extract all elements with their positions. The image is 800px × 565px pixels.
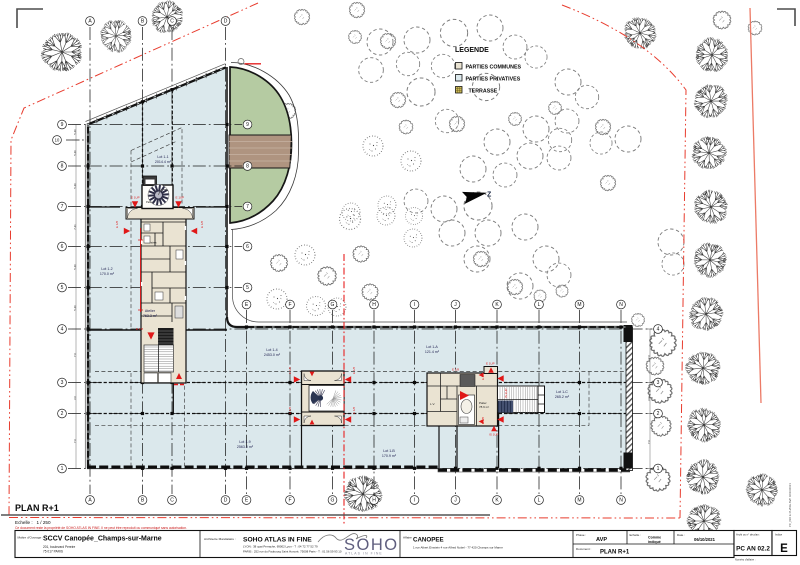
svg-text:1: 1 [61,466,64,472]
svg-text:L: L [538,302,541,308]
svg-text:E 1UP: E 1UP [486,362,495,366]
svg-text:PC AN 02.2: PC AN 02.2 [736,546,770,553]
svg-text:PLAN R+1: PLAN R+1 [15,503,59,513]
svg-text:Z: Z [487,192,492,199]
svg-text:E 1UP: E 1UP [176,196,185,200]
svg-text:Phase :: Phase : [576,533,586,537]
svg-text:E 1/8: E 1/8 [115,221,119,228]
svg-text:201, boulevard Pereire: 201, boulevard Pereire [43,545,75,549]
svg-text:Palier: Palier [146,200,153,204]
svg-text:I: I [414,302,415,308]
svg-text:2563.0 m²: 2563.0 m² [237,445,254,449]
svg-text:Atelier: Atelier [145,309,156,313]
svg-text:5: 5 [61,285,64,291]
svg-text:9: 9 [246,122,249,128]
svg-text:Lot 1-B: Lot 1-B [383,449,395,453]
svg-text:1: 1 [657,466,660,472]
svg-text:2453.0 m²: 2453.0 m² [264,353,281,357]
svg-text:PARIS : 252 rue du Faubourg Sa: PARIS : 252 rue du Faubourg Saint Honoré… [243,550,342,554]
svg-text:170.9 m²: 170.9 m² [382,454,397,458]
svg-text:LEGENDE: LEGENDE [455,47,489,54]
svg-text:4: 4 [657,327,660,333]
svg-text:F: F [288,498,291,504]
svg-text:170.0 m²: 170.0 m² [100,272,115,276]
svg-text:3: 3 [61,380,64,386]
svg-text:Echelle : 1 / 250: Echelle : 1 / 250 [15,520,51,525]
svg-text:7.0: 7.0 [647,355,651,359]
svg-text:IS 2UP: IS 2UP [504,388,508,398]
svg-text:C: C [170,19,174,25]
svg-text:1 rue Albert Einstein 4 rue A: 1 rue Albert Einstein 4 rue Alfred Nobel… [413,546,503,550]
svg-text:Lot 1-9: Lot 1-9 [239,440,250,444]
svg-text:6: 6 [246,244,249,250]
svg-text:G: G [331,302,335,308]
svg-text:7.0: 7.0 [73,353,77,357]
svg-text:7.0: 7.0 [647,440,651,444]
svg-text:763.3 m²: 763.3 m² [143,314,158,318]
svg-text:3: 3 [657,380,660,386]
svg-text:PARTIES COMMUNES: PARTIES COMMUNES [466,64,522,70]
svg-text:H: H [372,302,376,308]
svg-text:5: 5 [246,285,249,291]
svg-text:ATLAS IN FINE: ATLAS IN FINE [345,552,383,556]
svg-text:7: 7 [61,204,64,210]
svg-text:5.40: 5.40 [73,150,77,156]
svg-text:2014.4 m²: 2014.4 m² [155,160,172,164]
svg-text:Document :: Document : [576,547,592,551]
svg-text:5.40: 5.40 [73,305,77,311]
svg-text:06/10/2021: 06/10/2021 [694,537,716,542]
svg-text:Lot 1-2: Lot 1-2 [101,267,112,271]
svg-text:F: F [288,302,291,308]
svg-text:C: C [170,498,174,504]
svg-text:CANOPEE: CANOPEE [413,537,444,544]
svg-text:5.40: 5.40 [73,183,77,189]
svg-text:Indice: Indice [775,533,783,537]
svg-text:9: 9 [61,122,64,128]
svg-text:E 1/8: E 1/8 [288,367,292,374]
svg-text:PLAN R+1: PLAN R+1 [600,550,630,556]
svg-text:G: G [331,498,335,504]
svg-text:E 1/8: E 1/8 [200,221,204,228]
svg-text:3.0: 3.0 [647,397,651,401]
svg-text:Architecte Mandataire :: Architecte Mandataire : [204,537,236,541]
svg-text:7.41: 7.41 [73,224,77,230]
svg-text:Maître d'Ouvrage :: Maître d'Ouvrage : [18,536,44,540]
svg-text:265.2 m²: 265.2 m² [555,395,570,399]
svg-text:Date :: Date : [677,533,685,537]
svg-text:H: H [372,498,376,504]
svg-text:LYON : 38 quai Perrache, 6900: LYON : 38 quai Perrache, 69002 Lyon - T … [243,545,318,549]
svg-text:M: M [577,302,581,308]
svg-text:indiqué: indiqué [648,540,661,544]
svg-text:8: 8 [246,164,249,170]
svg-text:Numéro d'affaire :: Numéro d'affaire : [735,558,756,562]
svg-text:E 1/8: E 1/8 [288,407,292,414]
svg-text:E 1UP: E 1UP [131,196,140,200]
svg-text:Ce document reste la propriété: Ce document reste la propriété de SOHO A… [15,526,187,530]
svg-text:Lot 1-4: Lot 1-4 [266,348,277,352]
svg-text:7: 7 [246,204,249,210]
svg-text:5.40: 5.40 [73,264,77,270]
svg-text:Lot 1-1: Lot 1-1 [157,155,168,159]
svg-text:5.40: 5.40 [73,129,77,135]
svg-text:L: L [538,498,541,504]
svg-text:PARTIES PRIVATIVES: PARTIES PRIVATIVES [466,76,521,82]
svg-text:3.0: 3.0 [73,396,77,400]
svg-text:E 1/8: E 1/8 [452,368,459,372]
svg-text:Lot 1-C: Lot 1-C [556,390,568,394]
svg-text:E 1/8: E 1/8 [481,373,485,380]
svg-text:E 1/8: E 1/8 [481,417,485,424]
svg-text:E 1/8: E 1/8 [352,367,356,374]
svg-text:PC_IND E PHASE AVP 06/10/2021: PC_IND E PHASE AVP 06/10/2021 [788,483,792,527]
svg-text:SCCV Canopée_Champs-sur-Marne: SCCV Canopée_Champs-sur-Marne [43,536,162,543]
svg-text:D: D [224,19,228,25]
svg-text:Echelle :: Echelle : [630,533,642,537]
svg-text:AVP: AVP [596,537,607,543]
svg-text:75 017 PARIS: 75 017 PARIS [43,550,63,554]
svg-text:I: I [414,498,415,504]
svg-text:2: 2 [657,411,660,417]
svg-text:78.9 m²: 78.9 m² [479,405,489,409]
svg-text:6: 6 [61,244,64,250]
svg-text:8: 8 [61,164,64,170]
svg-text:Lot 1-A: Lot 1-A [426,345,438,349]
svg-text:E 1/8: E 1/8 [136,327,143,331]
svg-text:E 1/8: E 1/8 [352,407,356,414]
svg-text:121.4 m²: 121.4 m² [425,350,440,354]
svg-text:N: N [619,498,623,504]
svg-text:2: 2 [61,411,64,417]
svg-text:L.V.: L.V. [430,402,435,406]
svg-text:M: M [577,498,581,504]
svg-text:E: E [780,543,788,555]
svg-text:4: 4 [61,327,64,333]
svg-text:IS 1UP: IS 1UP [489,433,499,437]
svg-text:Archi ou n° de plan :: Archi ou n° de plan : [736,533,760,537]
svg-text:7.0: 7.0 [73,439,77,443]
svg-text:10: 10 [55,138,60,143]
svg-text:_TERRASSE: _TERRASSE [465,88,498,94]
svg-text:D: D [224,498,228,504]
svg-text:SOHO ATLAS IN FINE: SOHO ATLAS IN FINE [243,537,312,544]
svg-text:N: N [619,302,623,308]
